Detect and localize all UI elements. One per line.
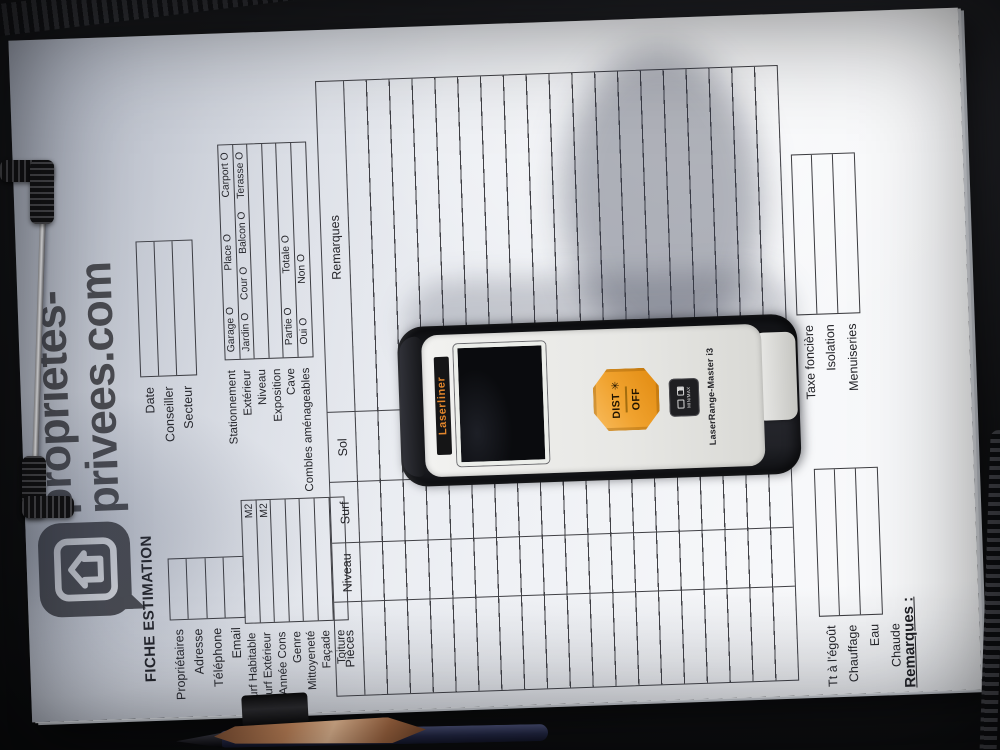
option-cour: Cour O [238,267,250,301]
logo-text-line2: privees.com [71,261,127,514]
laser-distance-meter: Laserliner DIST ✳ OFF [397,313,802,487]
dist-off-button: DIST ✳ OFF [592,367,660,431]
photo-background: proprietes- privees.com FICHE ESTIMATION… [0,0,1000,750]
dist-button-label: DIST ✳ [610,381,623,419]
option-terasse: Terasse O [234,152,247,199]
grip-ridges [22,496,74,518]
display-icon [677,386,684,395]
laserliner-brand-label: Laserliner [434,357,452,455]
remarks-label: Remarques : [899,597,919,688]
laser-beam-icon: ✳ [610,381,622,391]
page-title: FICHE ESTIMATION [138,535,160,682]
label-eau-chaude: Eau Chaude [864,619,888,694]
meta-labels: Date Conseiller Secteur [140,380,201,492]
clip-corner-bottom [22,496,74,518]
clip-corner-top-arm [30,160,54,224]
off-text: OFF [630,388,643,411]
option-jardin: Jardin O [240,313,252,352]
device-face: Laserliner DIST ✳ OFF [421,324,766,478]
option-partie: Partie O [283,307,295,345]
field-adresse [187,558,207,619]
house-logo-icon [37,521,132,618]
header-surf: Surf [330,482,360,544]
grip-ridges [30,160,54,224]
pen [148,708,559,750]
minmax-button: MIN/MAX [669,378,700,417]
footer-left-fields-box [814,467,883,617]
option-balcon: Balcon O [236,211,248,254]
button-divider [625,386,628,412]
minmax-text: MIN/MAX [686,387,692,409]
field-proprietaires [169,559,189,620]
pen-tip [176,733,222,749]
meta-fields-box [135,239,197,377]
option-non: Non O [296,254,308,284]
minmax-icons [677,386,685,408]
footer-right-fields-box [791,152,861,315]
estimation-form: proprietes- privees.com FICHE ESTIMATION… [8,8,981,723]
folder-zipper-edge-icon [979,430,1000,750]
header-niveau: Niveau [332,543,362,603]
header-pieces: Pièces [334,602,365,696]
field-menuiseries [833,153,859,313]
label-tout-a-legout: Tt à l'égoût [821,620,845,695]
label-secteur: Secteur [178,380,201,491]
option-garage: Garage O [225,307,238,353]
device-model-label: LaserRange-Master i3 [705,348,718,446]
field-secteur [173,241,196,376]
option-place: Place O [223,234,235,271]
field-eau-chaude [856,468,881,615]
option-carport: Carport O [220,152,233,198]
option-oui: Oui O [298,318,310,345]
option-totale: Totale O [281,235,293,274]
header-sol: Sol [328,412,358,483]
paper-sheet: proprietes- privees.com FICHE ESTIMATION… [8,8,981,723]
identity-labels: Propriétaires Adresse Téléphone Email [170,622,249,718]
field-telephone [205,558,225,619]
amenities-labels: Stationnement Extérieur Niveau Expositio… [225,362,321,569]
footer-left-labels: Tt à l'égoût Chauffage Eau Chaude [821,619,887,695]
dist-text: DIST [610,393,623,419]
device-screen [453,341,549,466]
label-chauffage: Chauffage [842,619,866,694]
house-glyph [48,531,125,608]
amenities-options-box: Garage O Place O Carport O Jardin O Cour… [217,141,313,360]
area-icon [677,399,684,408]
